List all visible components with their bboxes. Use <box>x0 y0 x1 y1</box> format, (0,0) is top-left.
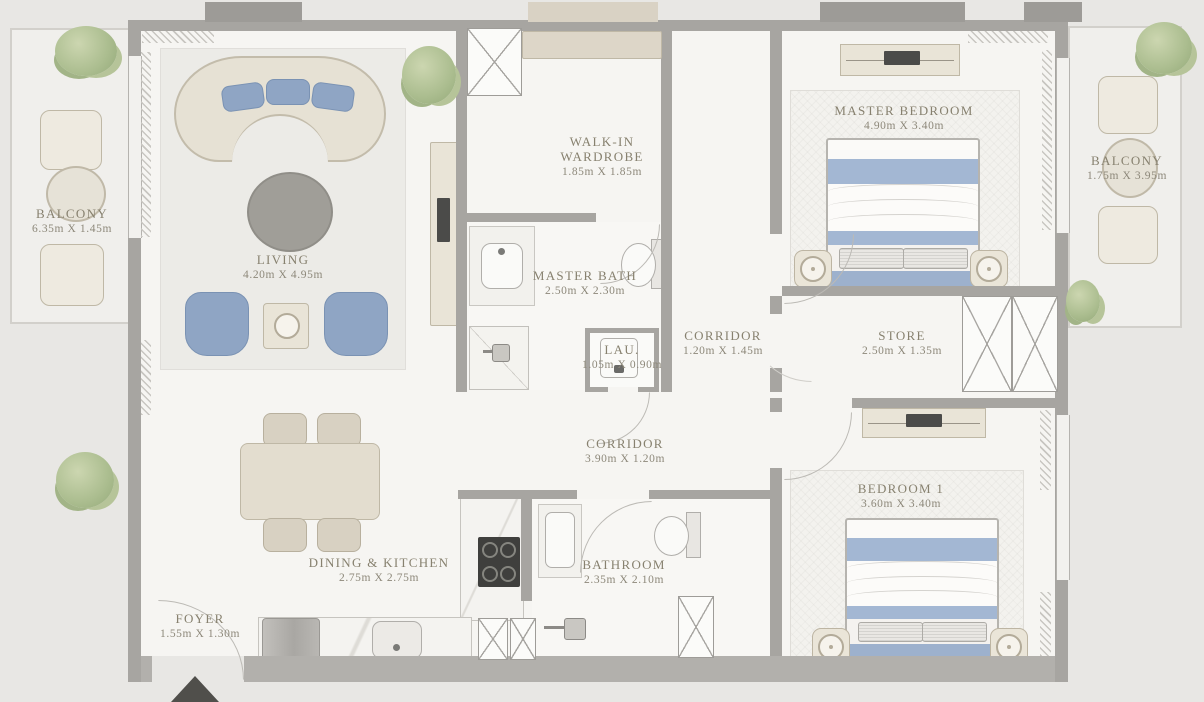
room-label-living: LIVING 4.20m X 4.95m <box>243 252 323 281</box>
room-name: BALCONY <box>32 206 112 221</box>
room-dims: 3.60m X 3.40m <box>858 498 944 510</box>
wardrobe-closet <box>522 31 662 59</box>
room-name: BALCONY <box>1087 153 1167 168</box>
bedroom1-bed <box>845 518 999 660</box>
duct-shaft <box>478 618 508 660</box>
room-dims: 3.90m X 1.20m <box>585 453 665 465</box>
entrance-arrow <box>171 676 219 702</box>
plant <box>1136 22 1192 74</box>
lounge-chair <box>40 110 102 170</box>
wall <box>521 499 532 601</box>
kitchen-sink <box>372 621 422 659</box>
lounge-chair <box>40 244 104 306</box>
dining-chair <box>317 518 361 552</box>
curtain-symbol <box>1042 50 1052 230</box>
room-label-laundry: LAU. 1.05m X 0.90m <box>582 342 662 371</box>
window <box>1056 415 1070 580</box>
shower-faucet-icon <box>492 344 510 362</box>
room-dims: 6.35m X 1.45m <box>32 223 112 235</box>
bath-sink <box>481 243 523 289</box>
faucet-stem <box>544 626 564 629</box>
side-table <box>263 303 309 349</box>
dining-table <box>240 443 380 520</box>
floor-plan-image: BALCONY 6.35m X 1.45m LIVING 4.20m X 4.9… <box>0 0 1204 702</box>
room-dims: 1.20m X 1.45m <box>683 345 763 357</box>
room-name: FOYER <box>160 611 240 626</box>
dining-chair <box>317 413 361 447</box>
room-label-wardrobe: WALK-IN WARDROBE 1.85m X 1.85m <box>550 134 654 178</box>
room-name: CORRIDOR <box>585 436 665 451</box>
lounge-chair <box>1098 206 1158 264</box>
wall <box>661 24 672 392</box>
wall <box>770 24 782 234</box>
room-dims: 1.85m X 1.85m <box>550 166 654 178</box>
refrigerator <box>262 618 320 660</box>
plant <box>1066 280 1100 322</box>
master-bed <box>826 138 980 288</box>
tv-icon <box>884 51 920 65</box>
room-dims: 2.50m X 1.35m <box>862 345 942 357</box>
room-label-balcony-left: BALCONY 6.35m X 1.45m <box>32 206 112 235</box>
duct-shaft <box>510 618 536 660</box>
room-dims: 2.35m X 2.10m <box>582 574 665 586</box>
room-label-foyer: FOYER 1.55m X 1.30m <box>160 611 240 640</box>
curtain-symbol <box>1040 592 1051 656</box>
toilet <box>654 516 689 556</box>
wall <box>456 213 596 222</box>
wall <box>852 398 1055 408</box>
nightstand-lamp <box>970 250 1008 288</box>
room-label-corridor-lower: CORRIDOR 3.90m X 1.20m <box>585 436 665 465</box>
plant <box>56 452 114 508</box>
room-label-bathroom: BATHROOM 2.35m X 2.10m <box>582 557 665 586</box>
sofa-cushion <box>266 79 310 105</box>
wall <box>458 490 577 499</box>
curtain-symbol <box>1040 410 1051 490</box>
wall <box>770 296 782 314</box>
tv-icon <box>906 414 942 427</box>
room-dims: 4.90m X 3.40m <box>834 120 973 132</box>
room-name: LAU. <box>582 342 662 357</box>
duct-shaft <box>962 296 1012 392</box>
faucet-icon <box>498 248 505 255</box>
pillow <box>858 622 923 642</box>
curtain-symbol <box>142 31 214 43</box>
room-label-corridor-upper: CORRIDOR 1.20m X 1.45m <box>683 328 763 357</box>
wall <box>649 490 782 499</box>
shower-faucet-icon <box>564 618 586 640</box>
exterior-block <box>1024 2 1082 22</box>
room-name: BEDROOM 1 <box>858 481 944 496</box>
dining-chair <box>263 518 307 552</box>
room-dims: 1.55m X 1.30m <box>160 628 240 640</box>
pillow <box>903 248 968 269</box>
curtain-symbol <box>141 52 151 237</box>
wall <box>456 24 467 392</box>
curtain-symbol <box>968 31 1048 43</box>
duct-shaft <box>678 596 714 658</box>
room-label-dining-kitchen: DINING & KITCHEN 2.75m X 2.75m <box>309 555 450 584</box>
duct-shaft <box>1012 296 1058 392</box>
room-label-master-bath: MASTER BATH 2.50m X 2.30m <box>533 268 637 297</box>
armchair <box>185 292 249 356</box>
curved-sofa <box>174 56 386 162</box>
curtain-symbol <box>141 340 151 415</box>
room-label-store: STORE 2.50m X 1.35m <box>862 328 942 357</box>
room-dims: 2.75m X 2.75m <box>309 572 450 584</box>
bath-sink <box>545 512 575 568</box>
faucet-icon <box>393 644 400 651</box>
tv-icon <box>437 198 450 242</box>
cooktop <box>478 537 520 587</box>
room-name: BATHROOM <box>582 557 665 572</box>
room-dims: 1.75m X 3.95m <box>1087 170 1167 182</box>
room-dims: 4.20m X 4.95m <box>243 269 323 281</box>
room-label-bedroom-1: BEDROOM 1 3.60m X 3.40m <box>858 481 944 510</box>
room-name: MASTER BATH <box>533 268 637 283</box>
wall <box>128 656 1068 682</box>
room-name: STORE <box>862 328 942 343</box>
room-label-master-bedroom: MASTER BEDROOM 4.90m X 3.40m <box>834 103 973 132</box>
room-name: WALK-IN WARDROBE <box>550 134 654 164</box>
dining-chair <box>263 413 307 447</box>
room-label-balcony-right: BALCONY 1.75m X 3.95m <box>1087 153 1167 182</box>
plant <box>402 46 456 104</box>
window <box>128 56 142 238</box>
plant <box>55 26 117 76</box>
room-name: LIVING <box>243 252 323 267</box>
exterior-block <box>820 2 965 22</box>
duct-shaft <box>467 28 522 96</box>
room-dims: 2.50m X 2.30m <box>533 285 637 297</box>
room-name: CORRIDOR <box>683 328 763 343</box>
armchair <box>324 292 388 356</box>
pillow <box>922 622 987 642</box>
room-name: MASTER BEDROOM <box>834 103 973 118</box>
coffee-table <box>247 172 333 252</box>
window <box>1056 58 1070 233</box>
room-dims: 1.05m X 0.90m <box>582 359 662 371</box>
room-name: DINING & KITCHEN <box>309 555 450 570</box>
lounge-chair <box>1098 76 1158 134</box>
faucet-stem <box>483 350 493 353</box>
exterior-block <box>205 2 302 22</box>
closet-block <box>528 2 658 22</box>
